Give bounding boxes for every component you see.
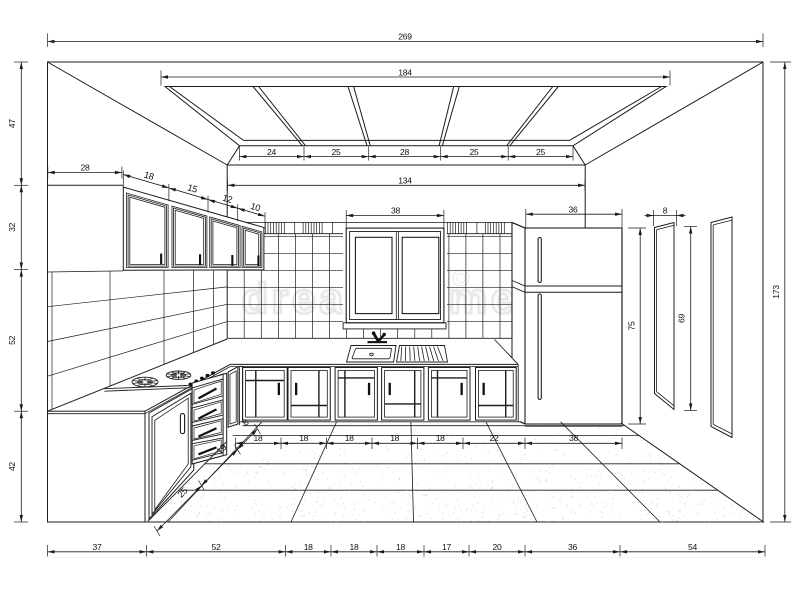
svg-text:47: 47 [7,119,17,128]
svg-text:42: 42 [7,462,17,471]
svg-text:28: 28 [400,147,409,157]
svg-text:32: 32 [7,222,17,231]
svg-text:38: 38 [569,433,578,443]
svg-text:173: 173 [771,285,781,299]
svg-text:18: 18 [254,433,263,443]
svg-text:18: 18 [436,433,445,443]
svg-text:69: 69 [677,314,687,323]
svg-text:37: 37 [93,542,102,552]
svg-text:18: 18 [345,433,354,443]
svg-text:269: 269 [398,32,412,42]
svg-text:38: 38 [391,206,400,216]
svg-text:17: 17 [442,542,451,552]
svg-text:184: 184 [398,67,412,77]
svg-text:28: 28 [81,163,90,173]
svg-text:18: 18 [396,542,405,552]
svg-text:25: 25 [332,147,341,157]
svg-text:36: 36 [568,542,577,552]
svg-text:52: 52 [7,335,17,344]
svg-text:25: 25 [536,147,545,157]
svg-text:54: 54 [688,542,697,552]
svg-text:22: 22 [490,433,499,443]
svg-text:134: 134 [398,175,412,185]
svg-text:8: 8 [663,206,668,216]
svg-text:20: 20 [493,542,502,552]
svg-text:18: 18 [299,433,308,443]
svg-text:18: 18 [304,542,313,552]
svg-text:18: 18 [350,542,359,552]
svg-text:24: 24 [267,147,276,157]
svg-text:25: 25 [470,147,479,157]
svg-text:36: 36 [569,204,578,214]
svg-text:75: 75 [627,321,637,330]
svg-text:18: 18 [390,433,399,443]
svg-text:52: 52 [212,542,221,552]
